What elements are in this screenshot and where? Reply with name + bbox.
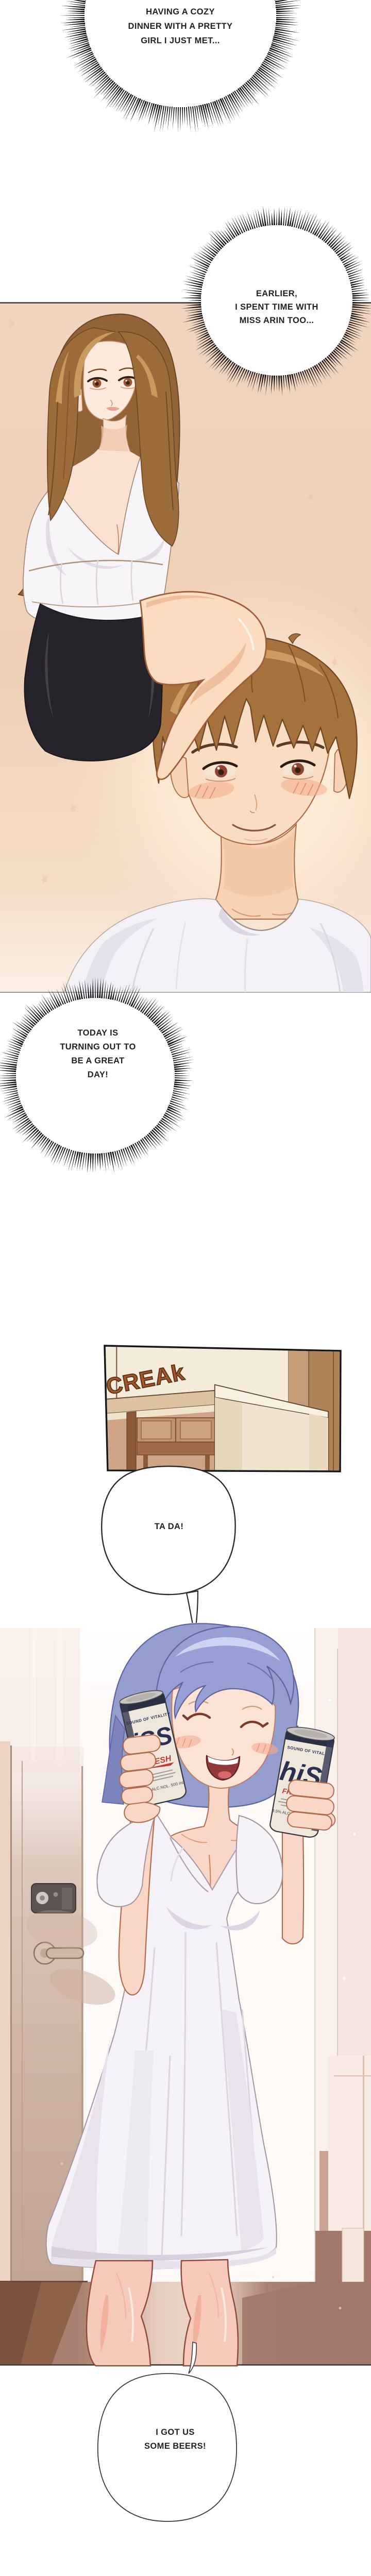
svg-text:GIRL I JUST MET...: GIRL I JUST MET... xyxy=(141,36,220,45)
svg-text:I SPENT TIME WITH: I SPENT TIME WITH xyxy=(235,302,318,312)
svg-text:TODAY IS: TODAY IS xyxy=(77,1028,118,1038)
svg-text:EARLIER,: EARLIER, xyxy=(256,289,297,298)
svg-text:BE A GREAT: BE A GREAT xyxy=(71,1056,124,1065)
svg-text:TURNING OUT TO: TURNING OUT TO xyxy=(60,1042,136,1052)
svg-text:TA DA!: TA DA! xyxy=(155,1522,183,1531)
svg-text:SOME BEERS!: SOME BEERS! xyxy=(144,2442,206,2451)
svg-text:HAVING A COZY: HAVING A COZY xyxy=(146,7,215,16)
svg-text:MISS ARIN TOO...: MISS ARIN TOO... xyxy=(240,316,314,325)
svg-text:DINNER WITH A PRETTY: DINNER WITH A PRETTY xyxy=(128,22,233,31)
svg-text:I GOT US: I GOT US xyxy=(156,2428,195,2437)
svg-text:DAY!: DAY! xyxy=(88,1070,108,1079)
